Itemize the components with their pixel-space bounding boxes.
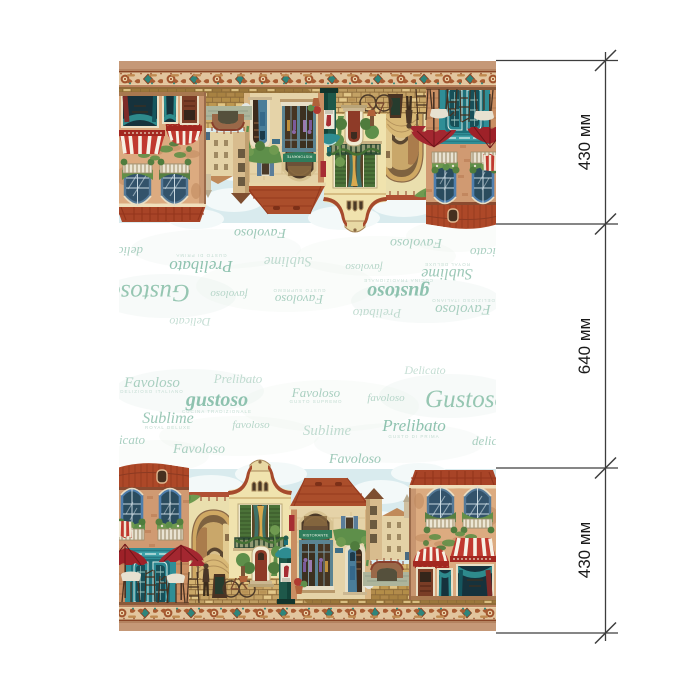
svg-text:430 мм: 430 мм xyxy=(575,114,594,170)
svg-text:640 мм: 640 мм xyxy=(575,318,594,374)
svg-text:430 мм: 430 мм xyxy=(575,522,594,578)
